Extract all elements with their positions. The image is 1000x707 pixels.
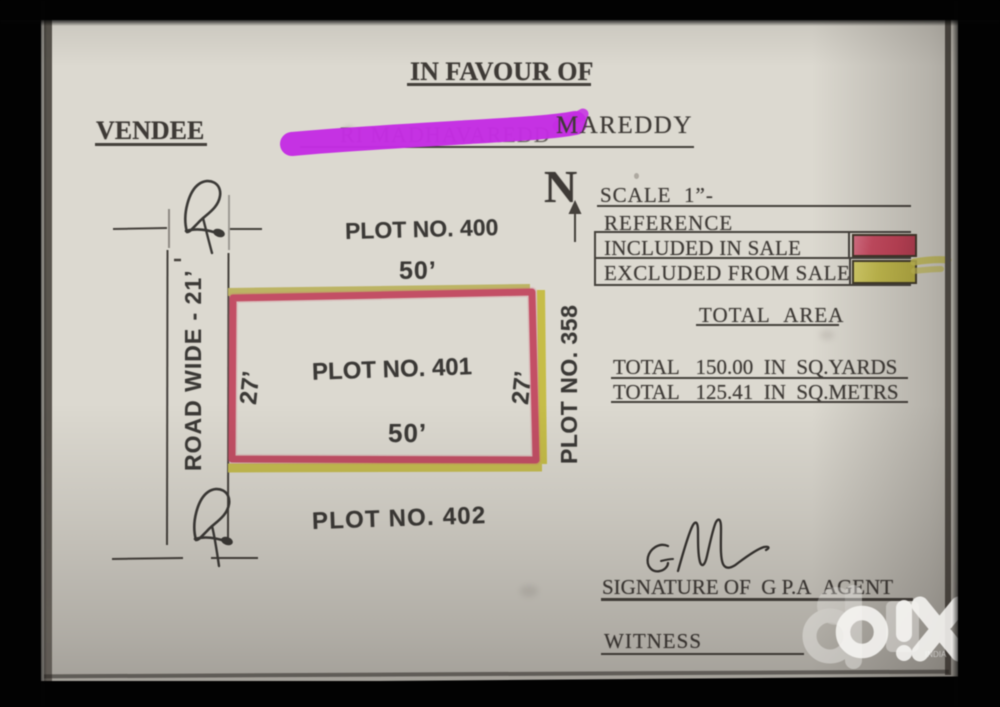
svg-text:INDIA: INDIA [925, 650, 947, 659]
